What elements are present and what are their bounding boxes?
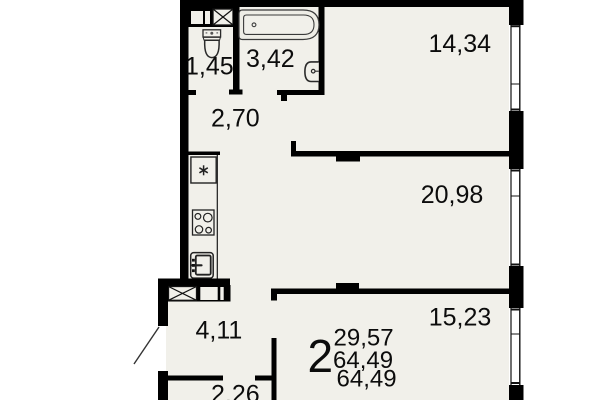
- svg-text:15,23: 15,23: [429, 303, 492, 331]
- svg-text:2: 2: [308, 330, 334, 382]
- svg-text:3,42: 3,42: [246, 45, 295, 73]
- svg-text:2,26: 2,26: [211, 381, 260, 400]
- svg-text:14,34: 14,34: [429, 30, 492, 58]
- svg-text:2,70: 2,70: [211, 105, 260, 133]
- svg-text:1,45: 1,45: [185, 53, 234, 81]
- svg-text:64,49: 64,49: [337, 366, 397, 393]
- svg-text:4,11: 4,11: [196, 317, 243, 345]
- svg-text:20,98: 20,98: [421, 181, 484, 209]
